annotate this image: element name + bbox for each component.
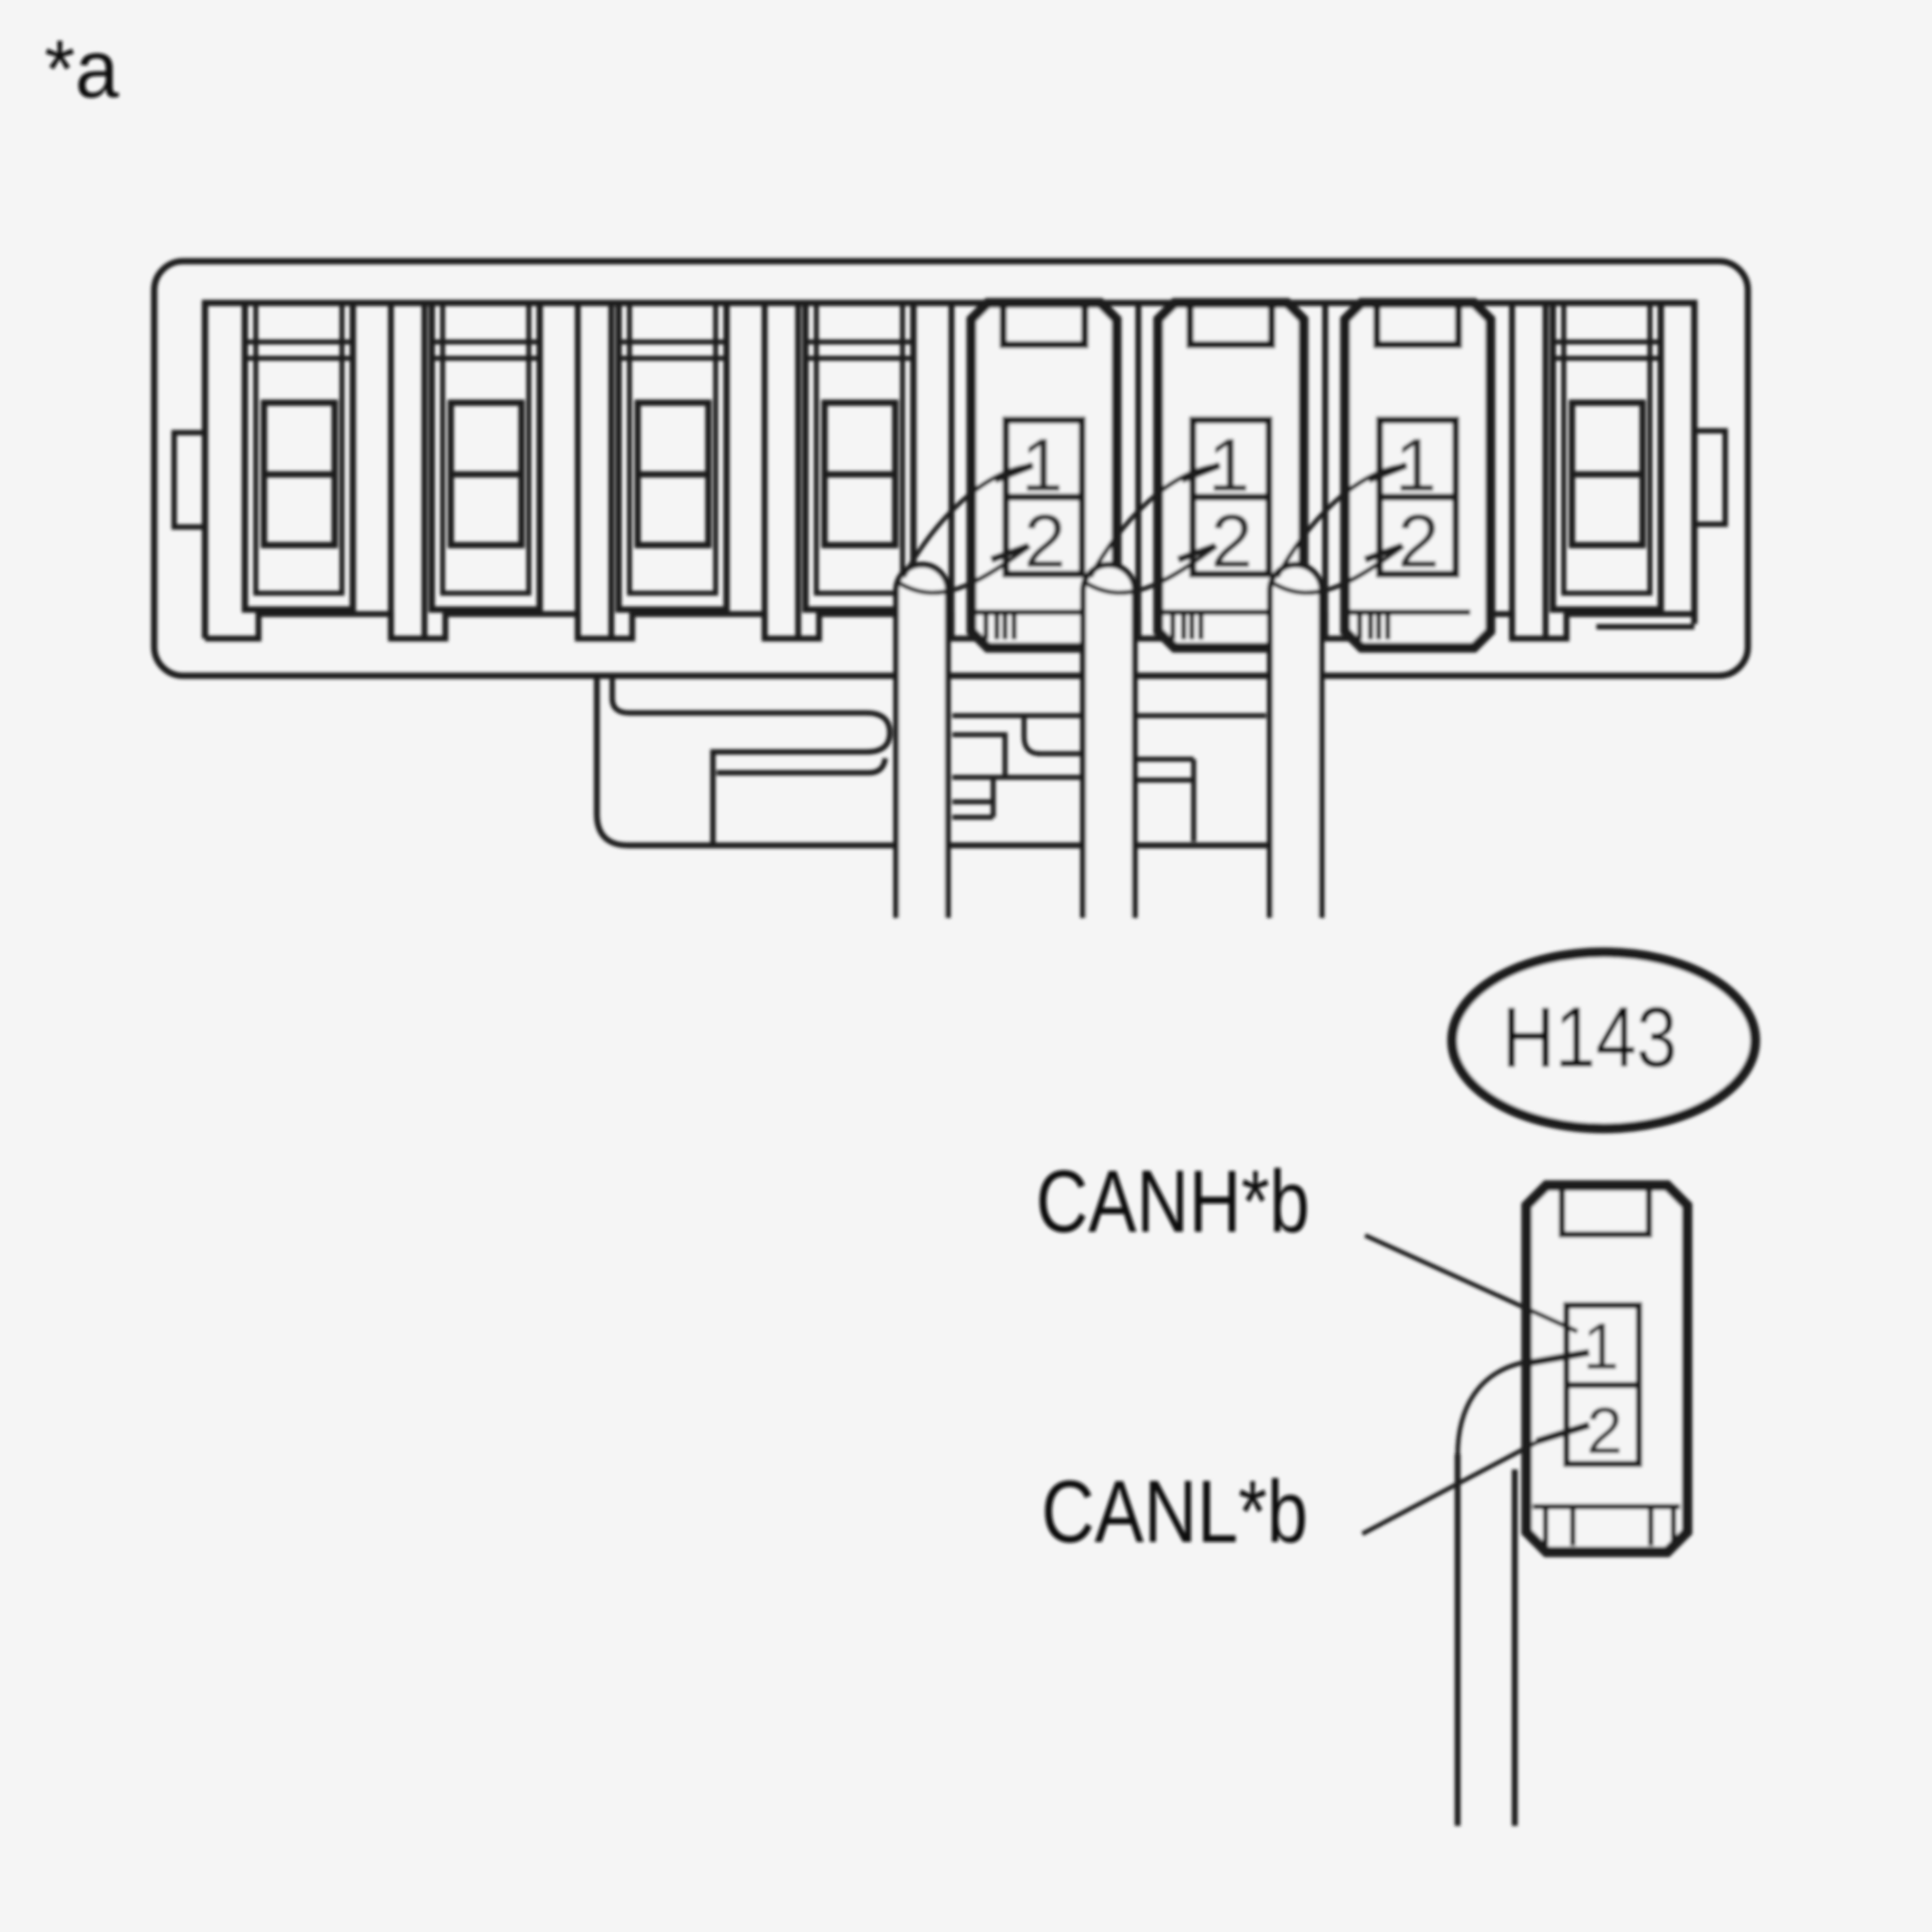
svg-text:2: 2 (1398, 499, 1439, 583)
svg-text:CANH*b: CANH*b (1036, 1152, 1310, 1251)
svg-text:1: 1 (1583, 1311, 1619, 1383)
svg-text:*a: *a (44, 24, 120, 115)
svg-text:2: 2 (1211, 499, 1253, 583)
svg-text:CANL*b: CANL*b (1041, 1462, 1308, 1561)
svg-text:H143: H143 (1502, 990, 1677, 1086)
svg-text:2: 2 (1024, 499, 1066, 583)
svg-text:2: 2 (1586, 1395, 1623, 1468)
